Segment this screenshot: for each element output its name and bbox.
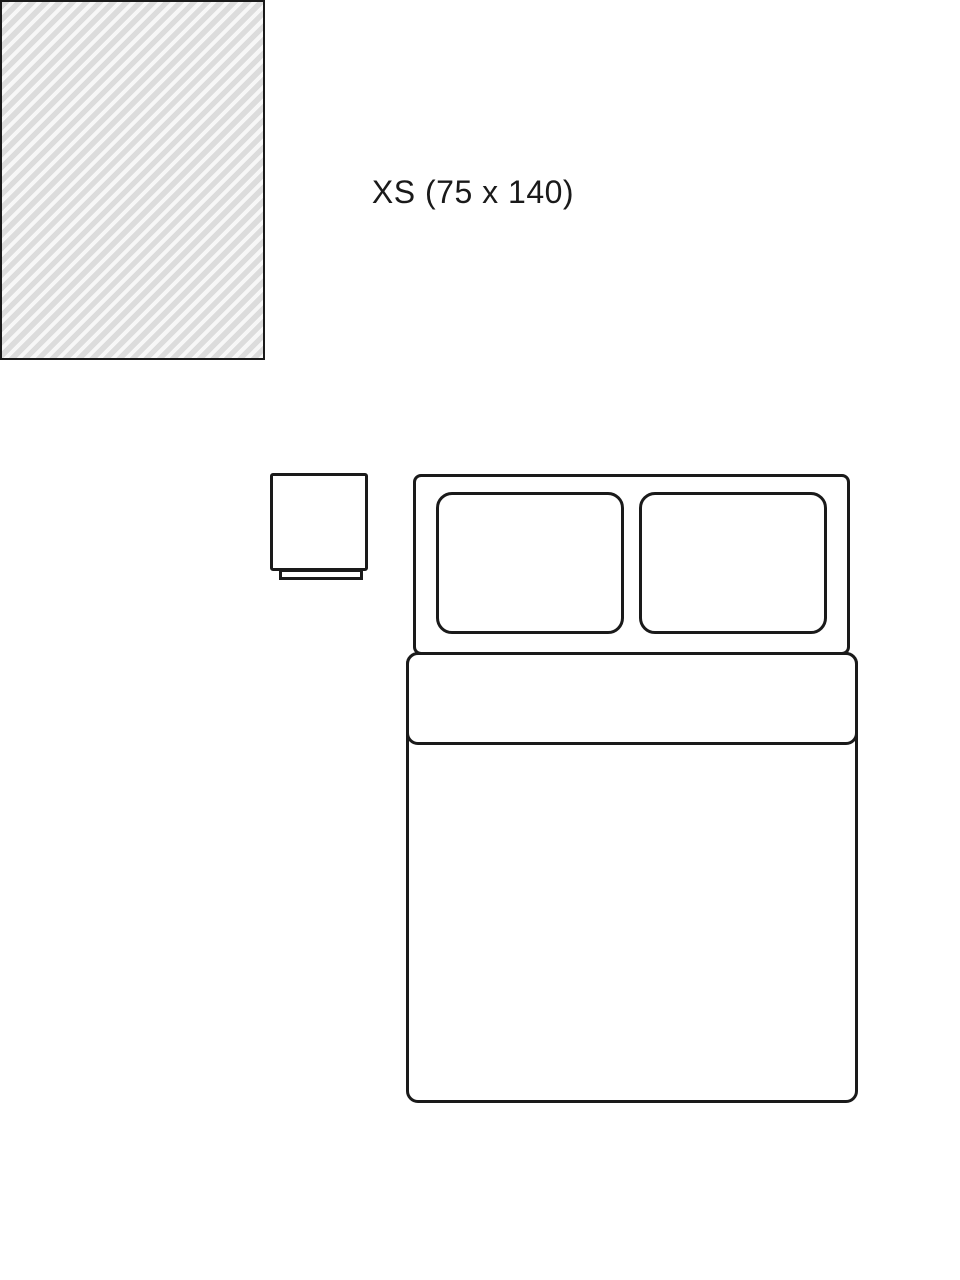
size-title: XS (75 x 140) bbox=[0, 172, 946, 212]
pillow-right-icon bbox=[639, 492, 827, 634]
nightstand-top-icon bbox=[270, 473, 368, 571]
rug-size-diagram: XS (75 x 140) bbox=[0, 0, 960, 1280]
pillow-left-icon bbox=[436, 492, 624, 634]
duvet-fold-icon bbox=[406, 652, 858, 745]
